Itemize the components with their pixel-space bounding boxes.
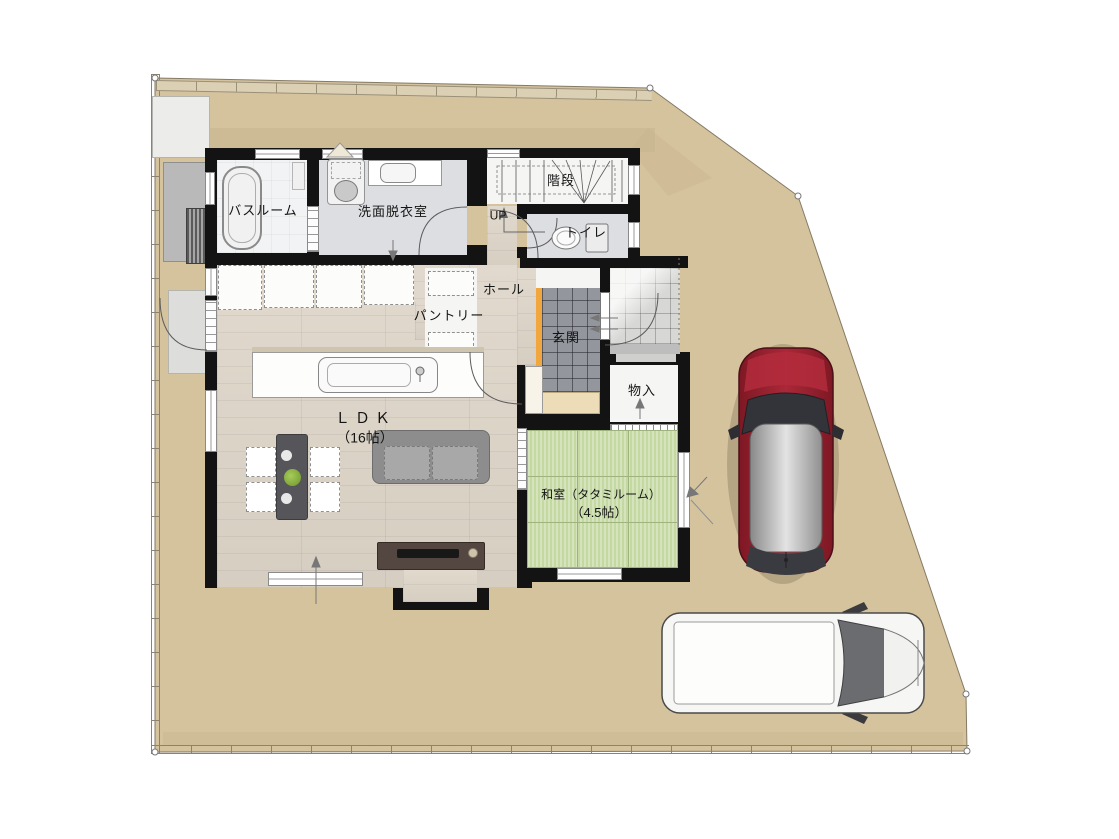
room-label-ldk: ＬＤＫ: [335, 411, 395, 428]
room-size-tatami: （4.5帖）: [570, 506, 627, 520]
room-label-stairs: 階段: [547, 174, 575, 188]
stairs-up-label: UP: [490, 209, 507, 222]
vent-triangle: [327, 143, 353, 157]
room-size-ldk: （16帖）: [336, 430, 394, 445]
room-label-entrance: 玄関: [552, 331, 580, 345]
red-car-top-view: [727, 344, 844, 584]
room-label-bathroom: バスルーム: [228, 204, 298, 218]
room-label-hall: ホール: [483, 283, 525, 297]
room-label-tatami: 和室（タタミルーム）: [541, 488, 661, 501]
faucet-icon: [416, 367, 424, 382]
room-label-toilet: トイレ: [565, 226, 607, 240]
white-minivan-top-view: [662, 602, 924, 724]
room-label-pantry: パントリー: [414, 309, 485, 323]
shutter-line: [691, 500, 713, 524]
room-label-washroom: 洗面脱衣室: [358, 205, 428, 219]
floor-plan-canvas: バスルーム 洗面脱衣室 階段 UP トイレ ホール パントリー 玄関 物入 ＬＤ…: [0, 0, 1119, 839]
detail-layer: [0, 0, 1119, 839]
room-label-storage: 物入: [628, 384, 656, 398]
